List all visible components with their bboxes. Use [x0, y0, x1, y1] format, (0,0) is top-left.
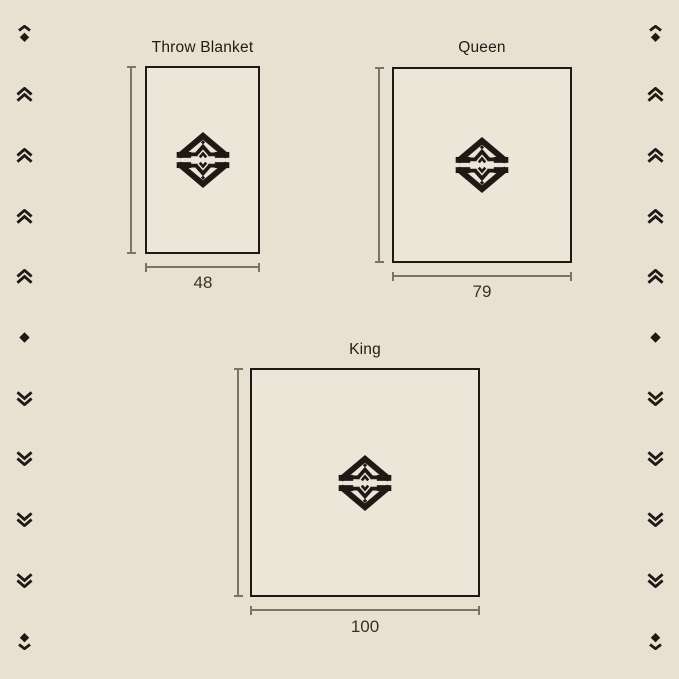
blanket-rectangle	[145, 66, 260, 254]
double-chevron-up-icon	[14, 145, 34, 165]
diamond-chevron-down-icon	[14, 631, 34, 651]
double-chevron-down-icon	[14, 388, 34, 408]
diamond-chevron-up-icon	[14, 24, 34, 44]
blanket-rectangle	[392, 67, 572, 263]
figure-title: Queen	[392, 39, 572, 57]
double-chevron-down-icon	[645, 388, 665, 408]
left-ornament-column	[14, 24, 34, 651]
double-chevron-up-icon	[14, 85, 34, 105]
double-chevron-down-icon	[14, 570, 34, 590]
brand-diamond-monogram-icon	[176, 131, 230, 189]
width-dimension-label: 48	[194, 273, 213, 293]
diamond-chevron-down-icon	[645, 631, 665, 651]
blanket-rectangle	[250, 368, 480, 597]
height-dimension-line	[237, 368, 239, 597]
double-chevron-up-icon	[645, 206, 665, 226]
double-chevron-down-icon	[14, 510, 34, 530]
width-dimension-line	[392, 275, 572, 277]
size-chart: Throw Blanket 82 48 Queen 87 79 King 100…	[0, 0, 679, 679]
double-chevron-up-icon	[14, 267, 34, 287]
width-dimension-label: 79	[473, 282, 492, 302]
double-chevron-down-icon	[645, 570, 665, 590]
double-chevron-up-icon	[645, 85, 665, 105]
brand-diamond-monogram-icon	[455, 136, 509, 194]
double-chevron-down-icon	[645, 510, 665, 530]
double-chevron-up-icon	[645, 267, 665, 287]
diamond-icon	[14, 327, 34, 347]
double-chevron-down-icon	[14, 449, 34, 469]
right-ornament-column	[645, 24, 665, 651]
diamond-icon	[645, 327, 665, 347]
width-dimension-label: 100	[351, 617, 379, 637]
double-chevron-down-icon	[645, 449, 665, 469]
figure-title: Throw Blanket	[145, 39, 260, 57]
double-chevron-up-icon	[645, 145, 665, 165]
figure-title: King	[250, 341, 480, 359]
width-dimension-line	[250, 609, 480, 611]
diamond-chevron-up-icon	[645, 24, 665, 44]
height-dimension-line	[378, 67, 380, 263]
brand-diamond-monogram-icon	[338, 454, 392, 512]
double-chevron-up-icon	[14, 206, 34, 226]
width-dimension-line	[145, 266, 260, 268]
height-dimension-line	[130, 66, 132, 254]
